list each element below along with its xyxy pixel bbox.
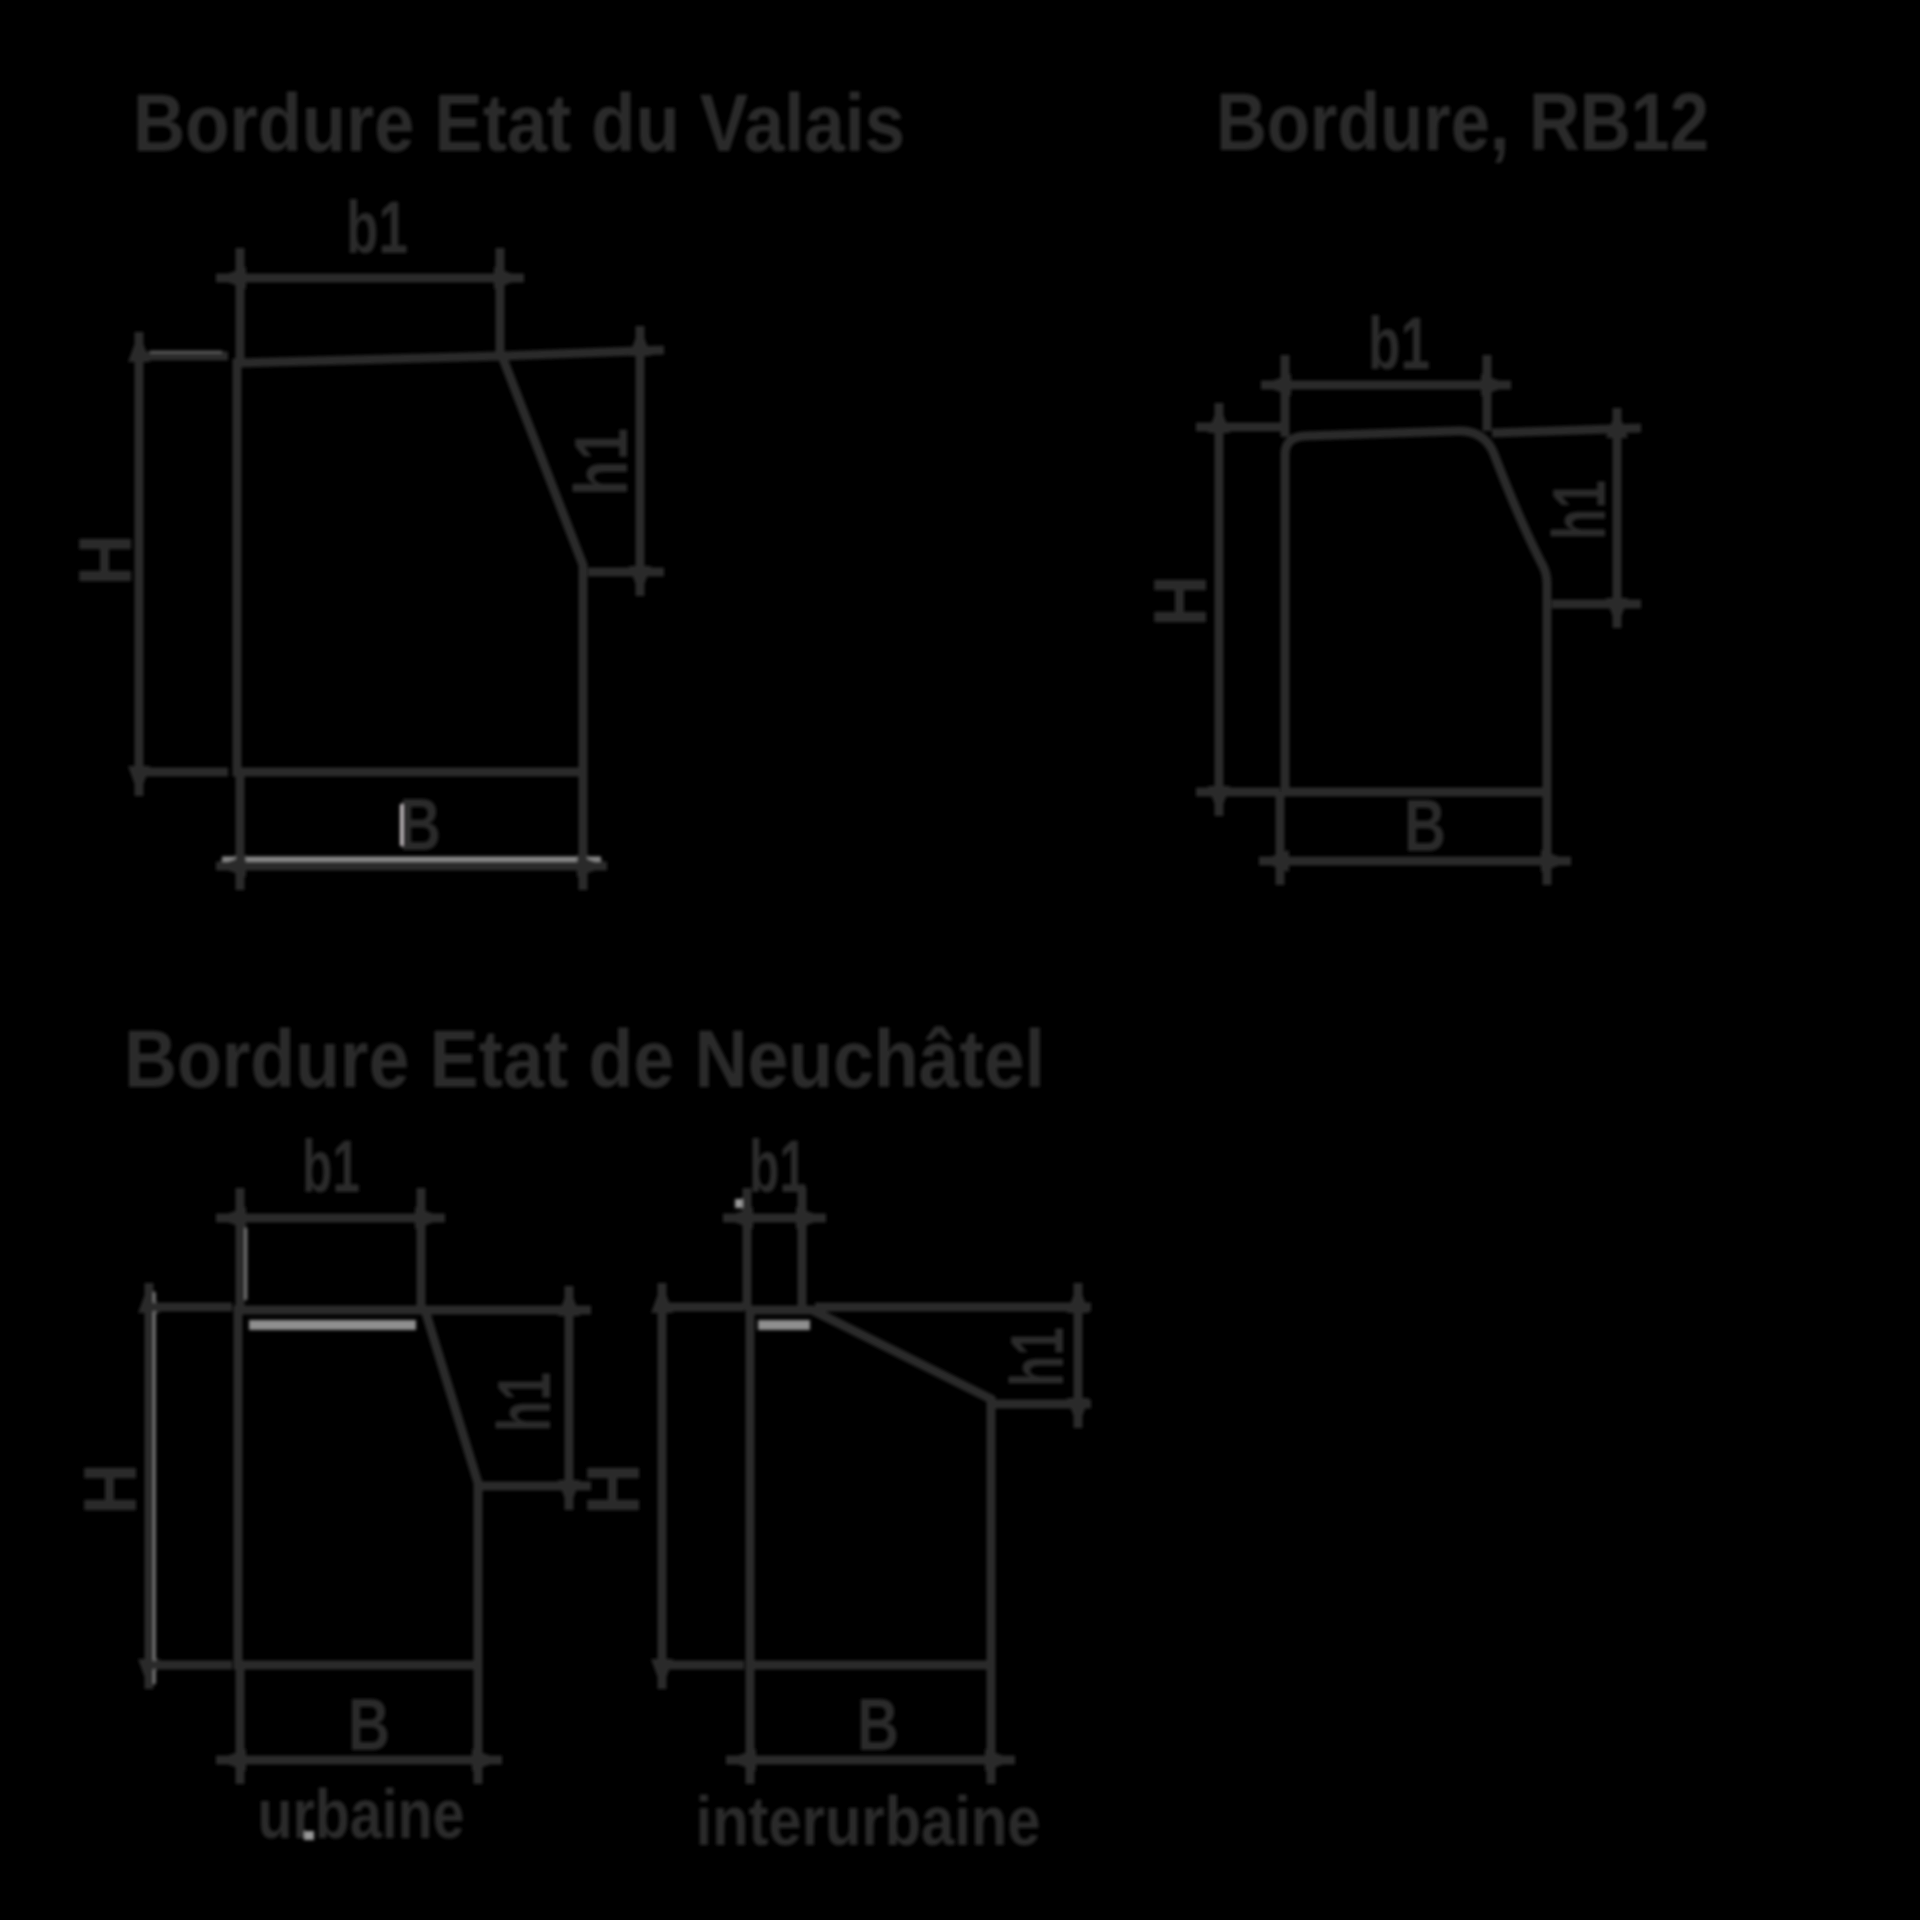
svg-text:h1: h1	[559, 428, 643, 496]
svg-text:H: H	[68, 1463, 152, 1515]
svg-text:b1: b1	[1368, 302, 1430, 385]
svg-text:interurbaine: interurbaine	[696, 1782, 1041, 1860]
svg-text:Bordure, RB12: Bordure, RB12	[1216, 77, 1709, 168]
svg-text:H: H	[1138, 575, 1222, 627]
svg-text:Bordure Etat du Valais: Bordure Etat du Valais	[133, 78, 905, 169]
svg-text:Bordure Etat de Neuchâtel: Bordure Etat de Neuchâtel	[124, 1014, 1045, 1105]
svg-text:H: H	[571, 1463, 655, 1515]
svg-text:h1: h1	[482, 1372, 566, 1432]
svg-text:B: B	[1404, 784, 1446, 867]
svg-text:B: B	[399, 783, 441, 866]
svg-text:h1: h1	[995, 1327, 1079, 1387]
svg-text:urbaine: urbaine	[258, 1775, 465, 1853]
svg-text:b1: b1	[302, 1125, 360, 1208]
svg-text:h1: h1	[1537, 480, 1621, 540]
svg-text:b1: b1	[346, 186, 408, 269]
svg-text:B: B	[348, 1683, 390, 1766]
svg-text:H: H	[63, 534, 147, 586]
svg-text:B: B	[857, 1683, 899, 1766]
